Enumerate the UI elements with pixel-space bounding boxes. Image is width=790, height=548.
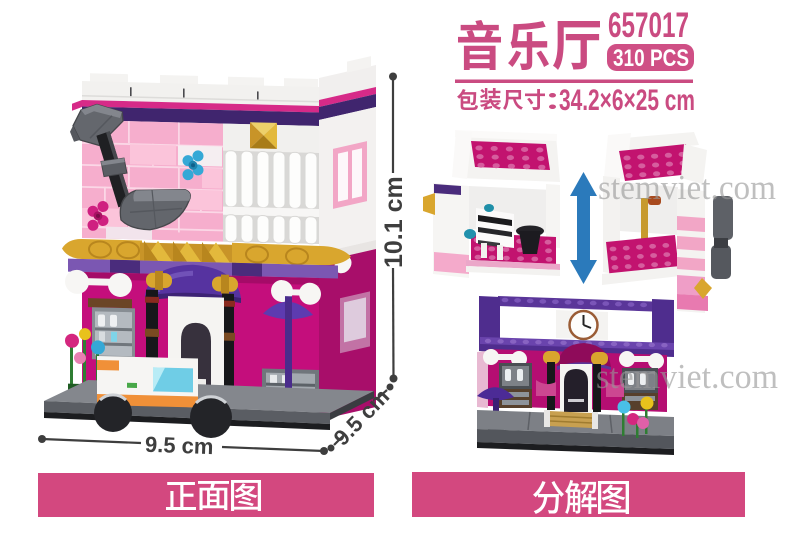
svg-text:stemviet.com: stemviet.com <box>598 168 776 207</box>
svg-text:9.5 cm: 9.5 cm <box>145 432 214 459</box>
svg-text:34.2×6×25 cm: 34.2×6×25 cm <box>559 84 695 117</box>
svg-text:stemviet.com: stemviet.com <box>596 357 778 396</box>
svg-text:310 PCS: 310 PCS <box>613 45 689 72</box>
svg-text:10.1 cm: 10.1 cm <box>380 176 408 268</box>
svg-text:657017: 657017 <box>608 6 689 45</box>
